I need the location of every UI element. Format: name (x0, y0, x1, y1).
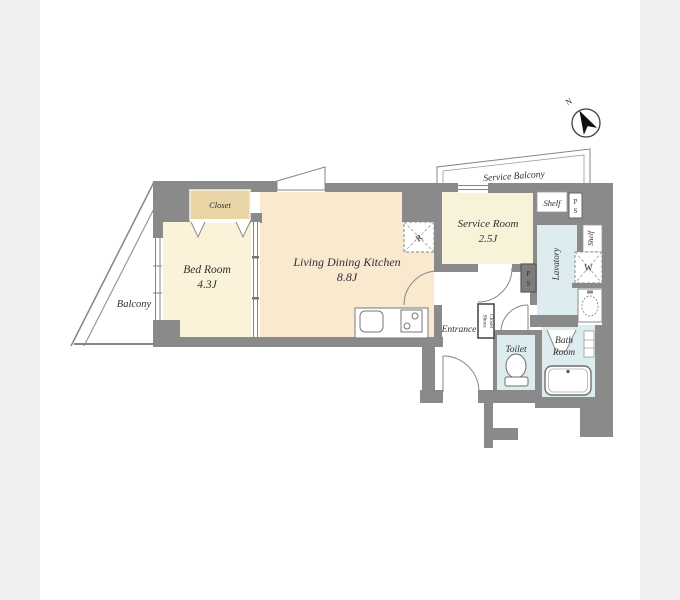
shelf-top: Shelf (537, 192, 567, 212)
washer-space: W (575, 252, 602, 283)
wall (478, 390, 535, 403)
toilet-tank-icon (505, 377, 528, 386)
bathroom-label: Room (552, 348, 575, 358)
wall (493, 335, 497, 390)
photo-edge-right (640, 0, 680, 600)
window-opening (458, 182, 488, 193)
wall (580, 408, 613, 437)
wall (572, 283, 603, 288)
washbasin (578, 289, 602, 322)
service-room-door-arc (478, 268, 512, 302)
partition-handle (252, 256, 259, 259)
shelf-label: Shelf (544, 198, 563, 208)
wall (533, 190, 537, 272)
shelf-label: Shelf (586, 230, 595, 246)
wall (153, 222, 163, 238)
wall (493, 428, 518, 440)
wall (153, 181, 193, 222)
toilet-bowl-icon (506, 354, 526, 378)
shoes-closet-label: Shoes (482, 314, 488, 327)
bedroom-size-label: 4.3J (197, 279, 217, 291)
balcony-inner-line (84, 191, 163, 346)
balcony: Balcony (71, 182, 163, 346)
bedroom-window (152, 238, 163, 320)
bedroom-ldk-partition (251, 222, 260, 337)
bay-window (277, 167, 325, 190)
refrigerator-space: R (404, 222, 434, 252)
service-room-window (458, 182, 488, 193)
entrance-label: Entrance (441, 325, 477, 335)
wall (535, 397, 613, 408)
bathtub-drain-icon (566, 370, 569, 373)
ldk-label: Living Dining Kitchen (292, 255, 400, 269)
service-room-label: Service Room (458, 218, 519, 230)
lavatory-door-arc (501, 305, 528, 332)
bedroom-floor (163, 218, 251, 337)
compass-north-label: N (564, 96, 574, 107)
partition-opening (251, 222, 260, 337)
bathroom-label: Bath (555, 336, 573, 346)
pipe-space-letter: S (574, 207, 578, 215)
stove-icon (401, 310, 422, 332)
wall (325, 183, 402, 192)
service-room-size-label: 2.5J (479, 233, 499, 245)
wall (577, 225, 583, 252)
wall (595, 325, 613, 408)
wall (530, 315, 578, 327)
wall (155, 320, 180, 338)
kitchen-counter (355, 308, 428, 338)
sink-icon (360, 311, 383, 332)
partition-handle (252, 297, 259, 300)
floor-plan-drawing: Service Balcony (0, 0, 680, 600)
photo-edge-left (0, 0, 40, 600)
ldk-size-label: 8.8J (337, 270, 358, 284)
wall (422, 337, 435, 392)
wall (442, 183, 458, 192)
pipe-space-letter: P (527, 270, 531, 278)
wall (493, 330, 537, 335)
bedroom-label: Bed Room (183, 264, 231, 276)
pipe-space-hall: P S (521, 264, 536, 292)
entrance-door-arc (443, 356, 479, 392)
window-opening (152, 238, 163, 320)
wall (420, 390, 443, 403)
wall (488, 183, 535, 193)
faucet-icon (587, 291, 593, 294)
shoes-closet-label: Closet (488, 314, 494, 329)
wall (484, 403, 493, 448)
washer-label: W (584, 263, 593, 273)
toilet: Toilet (505, 345, 528, 386)
balcony-edge-line (71, 182, 154, 346)
balcony-label: Balcony (117, 299, 152, 310)
wall (535, 330, 542, 397)
pipe-space-top: P S (569, 193, 582, 218)
wall (402, 183, 442, 222)
compass: N (564, 96, 600, 137)
shoes-closet: Shoes Closet (478, 304, 494, 338)
pipe-space-letter: P (574, 198, 578, 206)
floor-plan-page: Service Balcony (0, 0, 680, 600)
pipe-space-letter: S (527, 280, 531, 288)
lavatory-label: Lavatory (551, 248, 561, 282)
shelf-side: Shelf (583, 225, 602, 252)
shower-panel-icon (584, 331, 594, 357)
closet-label: Closet (209, 200, 231, 210)
wall (434, 264, 478, 272)
toilet-label: Toilet (505, 345, 527, 355)
